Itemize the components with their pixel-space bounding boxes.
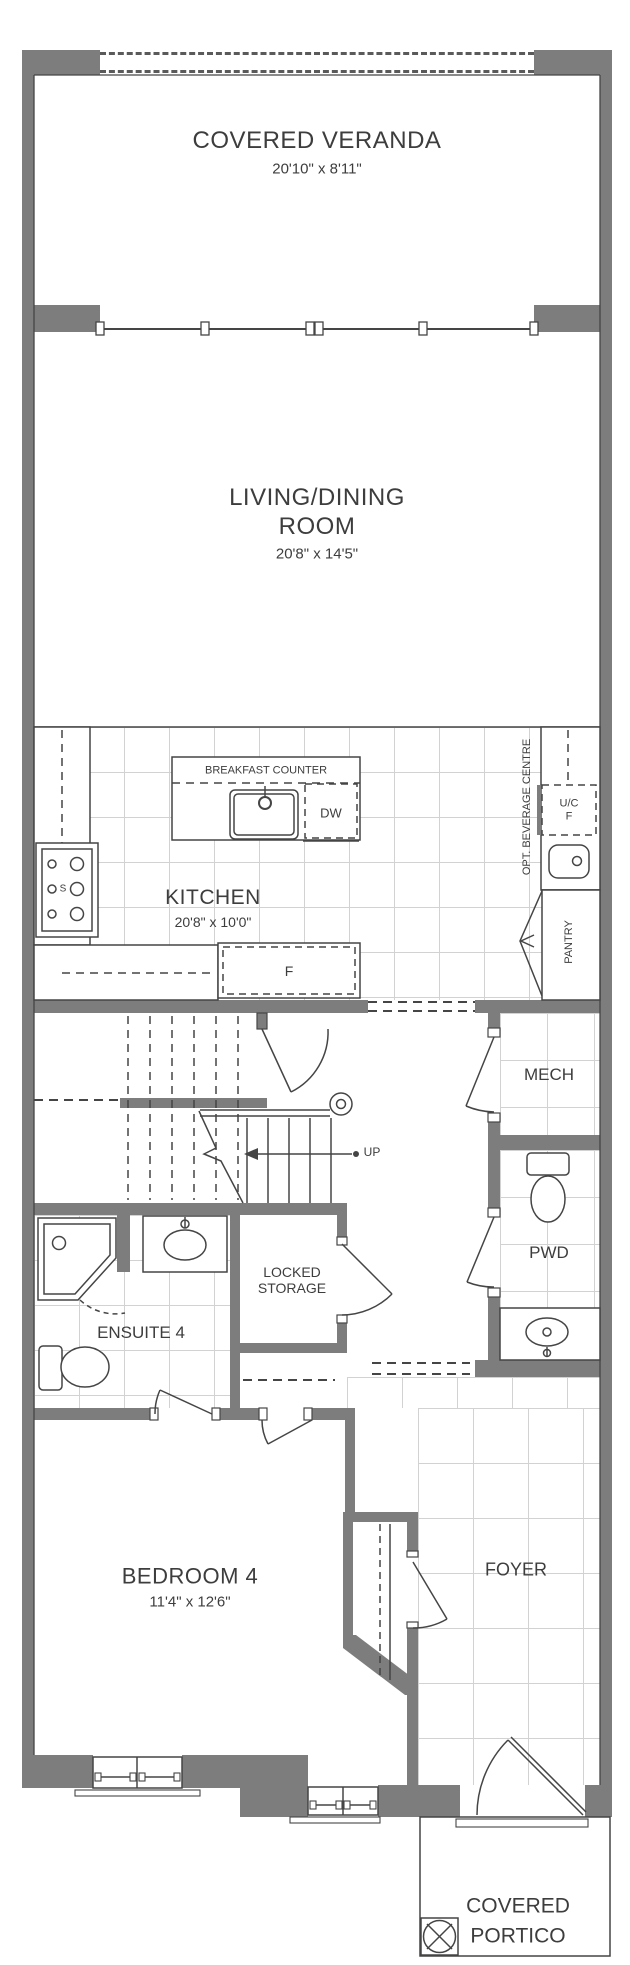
portico-label: COVERED PORTICO [466,1892,570,1953]
bedroom-label: BEDROOM 4 [122,1563,259,1588]
kitchen-label: KITCHEN [165,886,261,910]
veranda-label: COVERED VERANDA [193,127,442,155]
portico-column [421,1918,458,1955]
bifold-door [520,891,542,996]
beverage-centre-label: OPT. BEVERAGE CENTRE [521,739,533,875]
veranda-dims: 20'10" x 8'11" [272,160,362,177]
locked-storage-label: LOCKED STORAGE [258,1264,326,1296]
stair-break-line [199,1111,243,1203]
pwd-toilet [527,1153,569,1222]
pantry-closet [520,890,600,1000]
uc-fridge-label: U/C F [560,797,579,822]
kitchen-dims: 20'8" x 10'0" [175,914,252,930]
front-door-sill [456,1819,588,1827]
door-jambs [150,1013,500,1628]
dishwasher-label: DW [320,807,342,822]
ensuite-door [155,1390,212,1414]
fridge-label: F [285,963,294,979]
pwd-label: PWD [529,1243,569,1263]
front-door [477,1737,586,1815]
pwd-door [467,1217,494,1287]
living-dims: 20'8" x 14'5" [276,545,358,562]
foyer-closet-door [413,1562,447,1628]
stair-door [262,1029,328,1092]
foyer-label: FOYER [485,1560,547,1581]
ensuite-toilet [39,1346,109,1390]
up-label: UP [364,1146,381,1160]
ensuite-vanity-sink [143,1216,227,1272]
pantry-label: PANTRY [563,920,575,964]
stove [36,843,98,937]
bedroom-window-1 [75,1757,200,1796]
breakfast-counter-label: BREAKFAST COUNTER [205,765,327,778]
mech-door [466,1037,494,1112]
up-arrow [244,1148,359,1160]
window-wall [96,322,538,335]
pwd-vanity-sink [500,1308,600,1360]
living-label: LIVING/DINING [229,484,405,512]
bedroom-window-2 [290,1787,380,1823]
floor-plan: COVERED VERANDA 20'10" x 8'11" LIVING/DI… [0,0,630,1965]
mech-label: MECH [524,1065,574,1085]
staircase [128,1016,359,1203]
plan-linework [0,0,630,1965]
bedroom-door [262,1420,312,1444]
bedroom-dims: 11'4" x 12'6" [149,1593,230,1610]
ensuite-label: ENSUITE 4 [97,1323,185,1343]
living-label-2: ROOM [279,513,356,541]
shower [38,1218,125,1314]
storage-door [342,1244,392,1315]
stair-railing [200,1093,352,1116]
stove-label: S [60,883,67,895]
